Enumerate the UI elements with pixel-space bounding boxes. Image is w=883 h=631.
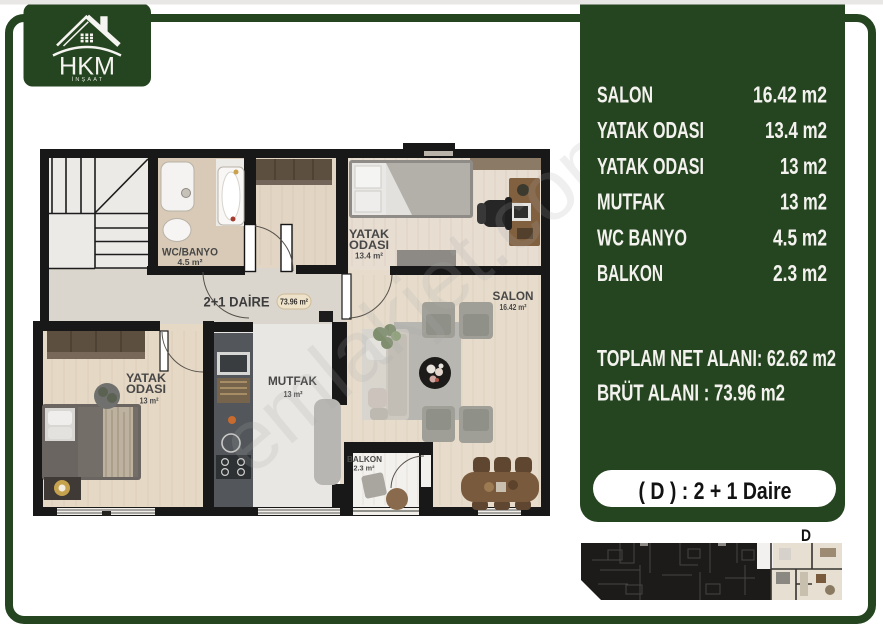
svg-text:73.96 m²: 73.96 m²	[280, 297, 308, 307]
svg-text:13 m²: 13 m²	[140, 396, 159, 406]
svg-text:4.5 m²: 4.5 m²	[178, 257, 203, 267]
svg-text:13.4 m²: 13.4 m²	[355, 251, 383, 261]
svg-text:YATAK ODASI: YATAK ODASI	[597, 153, 704, 179]
svg-text:ODASI: ODASI	[126, 384, 166, 396]
svg-text:İNŞAAT: İNŞAAT	[72, 76, 105, 83]
svg-text:2+1 DAİRE: 2+1 DAİRE	[204, 295, 270, 310]
svg-text:YATAK ODASI: YATAK ODASI	[597, 117, 704, 143]
svg-text:D: D	[801, 526, 811, 545]
svg-text:16.42 m²: 16.42 m²	[500, 302, 527, 312]
svg-text:2.3 m²: 2.3 m²	[354, 464, 375, 473]
svg-text:MUTFAK: MUTFAK	[597, 189, 665, 215]
svg-text:BALKON: BALKON	[597, 260, 663, 286]
svg-text:16.42 m2: 16.42 m2	[753, 82, 827, 108]
svg-text:13 m2: 13 m2	[780, 153, 827, 179]
svg-text:4.5 m2: 4.5 m2	[773, 224, 827, 250]
svg-text:WC BANYO: WC BANYO	[597, 224, 687, 250]
svg-text:13.4 m2: 13.4 m2	[765, 117, 827, 143]
svg-text:13 m2: 13 m2	[780, 189, 827, 215]
svg-text:BRÜT ALANI : 73.96 m2: BRÜT ALANI : 73.96 m2	[597, 379, 785, 405]
svg-text:2.3 m2: 2.3 m2	[773, 260, 827, 286]
svg-text:SALON: SALON	[597, 82, 653, 108]
svg-text:( D ) : 2 + 1 Daire: ( D ) : 2 + 1 Daire	[639, 478, 792, 505]
svg-text:TOPLAM NET ALANI: 62.62 m2: TOPLAM NET ALANI: 62.62 m2	[597, 345, 836, 371]
